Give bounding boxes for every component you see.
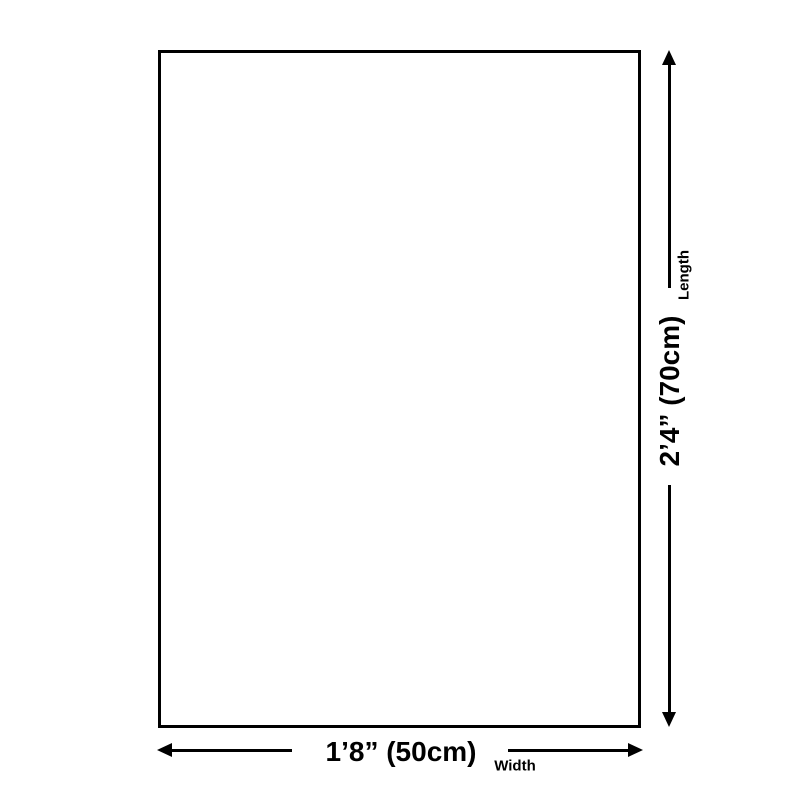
- dimension-diagram: Length 2’4” (70cm) 1’8” (50cm) Width: [0, 0, 800, 800]
- width-dimension-line-right: [508, 749, 630, 752]
- length-dimension-line-bottom: [668, 485, 671, 714]
- arrow-down-icon: [662, 712, 676, 727]
- width-caption: Width: [494, 758, 536, 775]
- width-dimension-line-left: [170, 749, 292, 752]
- arrow-right-icon: [628, 743, 643, 757]
- length-dimension-line-top: [668, 62, 671, 288]
- length-caption: Length: [676, 250, 693, 300]
- width-value-label: 1’8” (50cm): [326, 736, 477, 768]
- product-outline-rectangle: [158, 50, 641, 728]
- length-value-label: 2’4” (70cm): [654, 316, 686, 467]
